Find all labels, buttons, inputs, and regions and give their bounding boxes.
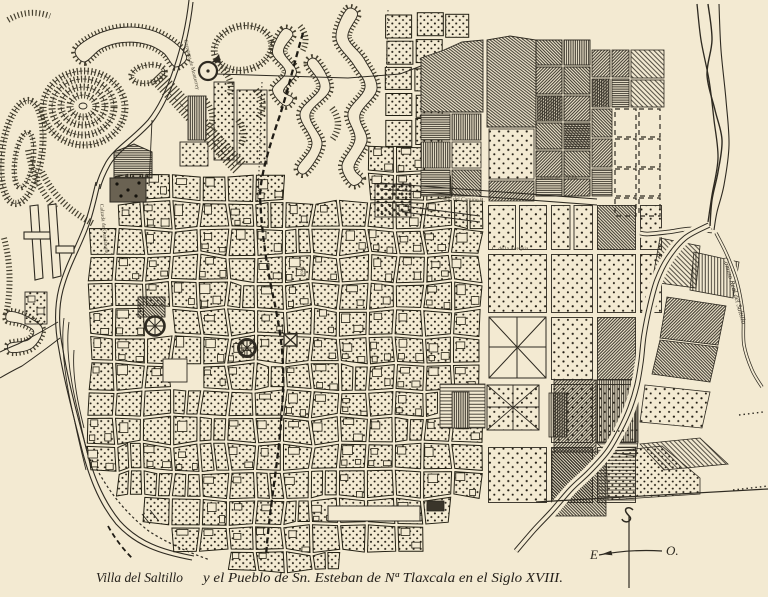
svg-text:O.: O. (666, 543, 679, 558)
svg-text:C. de la Acequia: C. de la Acequia (492, 246, 529, 252)
svg-text:E: E (589, 547, 598, 562)
svg-text:C. Real: C. Real (298, 260, 305, 277)
svg-text:y el Pueblo de Sn. Esteban de: y el Pueblo de Sn. Esteban de Nª Tlaxcal… (201, 570, 563, 585)
svg-text:Villa del Saltillo: Villa del Saltillo (96, 570, 183, 585)
